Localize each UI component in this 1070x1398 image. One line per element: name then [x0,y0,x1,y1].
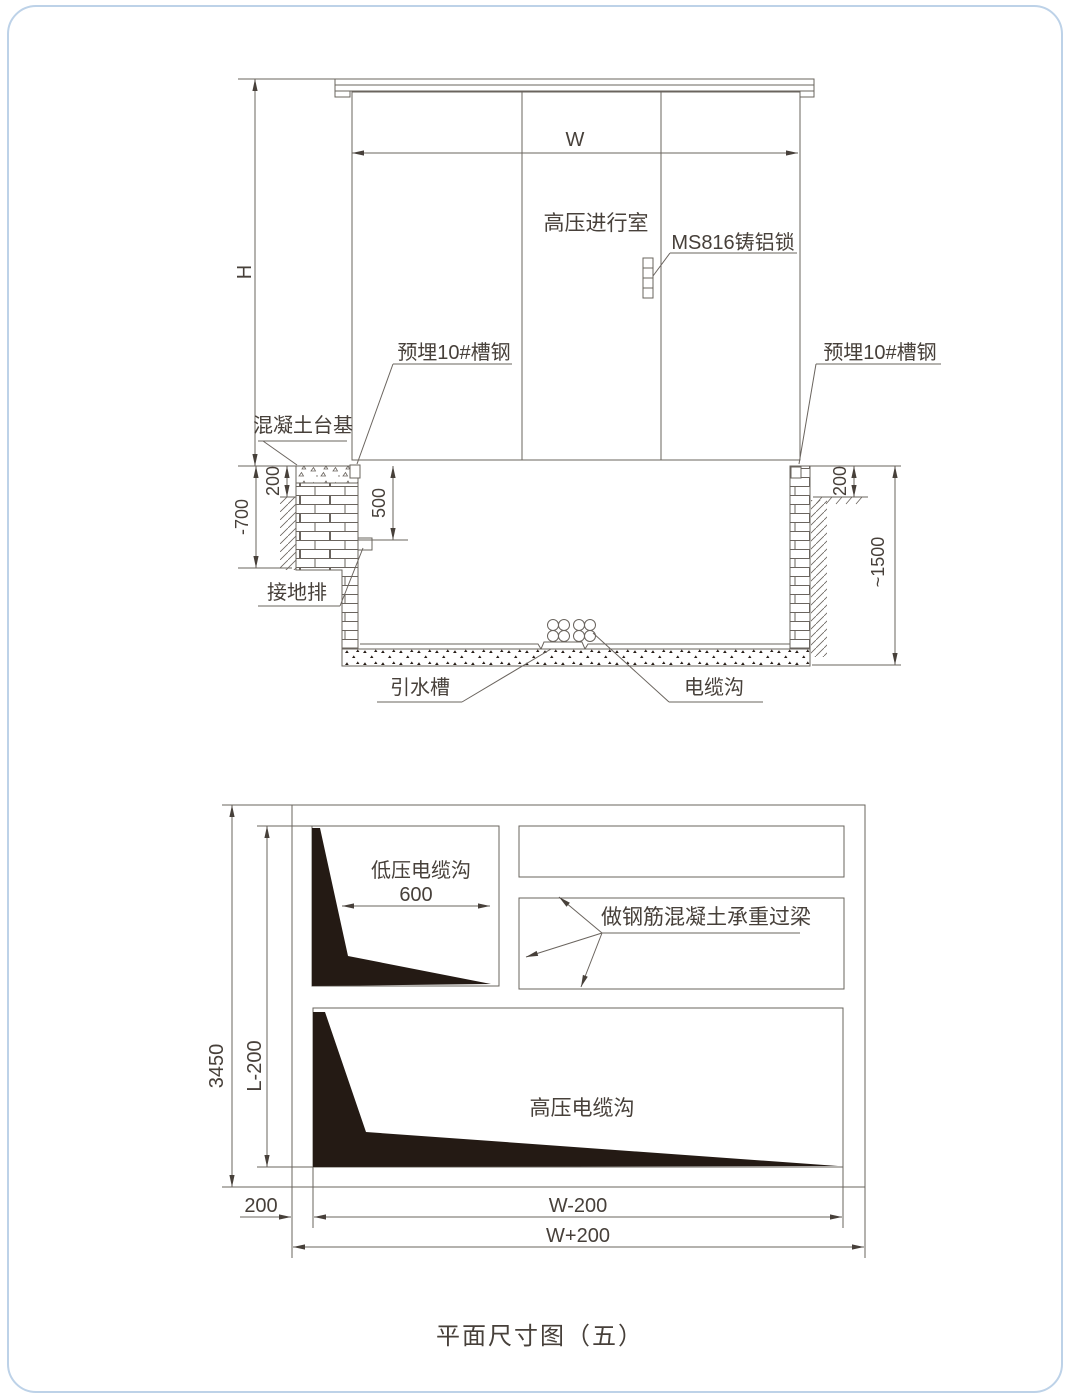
dim-1500: ~1500 [868,537,888,588]
technical-drawing: W 高压进行室 MS816铸铝锁 预埋10#槽钢 预埋10#槽钢 混凝土台基 接… [0,0,1070,1398]
label-grounding-bar: 接地排 [267,581,327,604]
label-hv-trench: 高压电缆沟 [530,1097,635,1120]
dim-200-margin: 200 [244,1195,277,1217]
dim-200-left: 200 [263,466,283,496]
drawing-page: W 高压进行室 MS816铸铝锁 预埋10#槽钢 预埋10#槽钢 混凝土台基 接… [0,0,1070,1398]
embedded-channel-left [350,465,360,478]
dim-200-right: 200 [830,466,850,496]
label-beam-note: 做钢筋混凝土承重过梁 [601,906,811,929]
label-channel-left: 预埋10#槽钢 [397,341,510,364]
label-channel-right: 预埋10#槽钢 [823,341,936,364]
label-lock: MS816铸铝锁 [671,231,794,254]
label-concrete-base: 混凝土台基 [253,414,353,437]
dim-w-plus-200: W+200 [546,1225,610,1247]
dim-w: W [566,129,585,151]
label-lv-trench: 低压电缆沟 [371,859,471,882]
drawing-caption: 平面尺寸图（五） [436,1323,644,1350]
dim-500: 500 [369,488,389,518]
dim-3450: 3450 [206,1044,228,1089]
dim-l-200: L-200 [244,1040,266,1091]
dim-600: 600 [399,884,432,906]
dim-700: -700 [232,499,252,535]
label-room: 高压进行室 [544,212,649,235]
label-drain-channel: 引水槽 [390,676,450,699]
embedded-channel-right [791,467,801,478]
label-cable-trench: 电缆沟 [684,676,744,699]
dim-h: H [234,265,256,279]
dim-w-200: W-200 [549,1195,608,1217]
